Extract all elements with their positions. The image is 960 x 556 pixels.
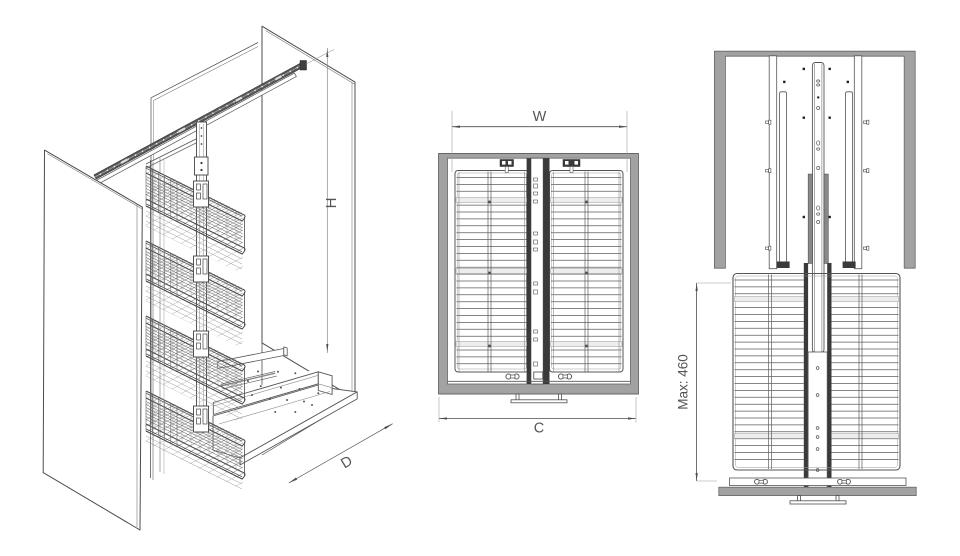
- svg-text:H: H: [323, 198, 340, 209]
- svg-text:Max: 460: Max: 460: [676, 354, 691, 410]
- svg-text:W: W: [533, 109, 547, 125]
- svg-text:C: C: [534, 421, 544, 437]
